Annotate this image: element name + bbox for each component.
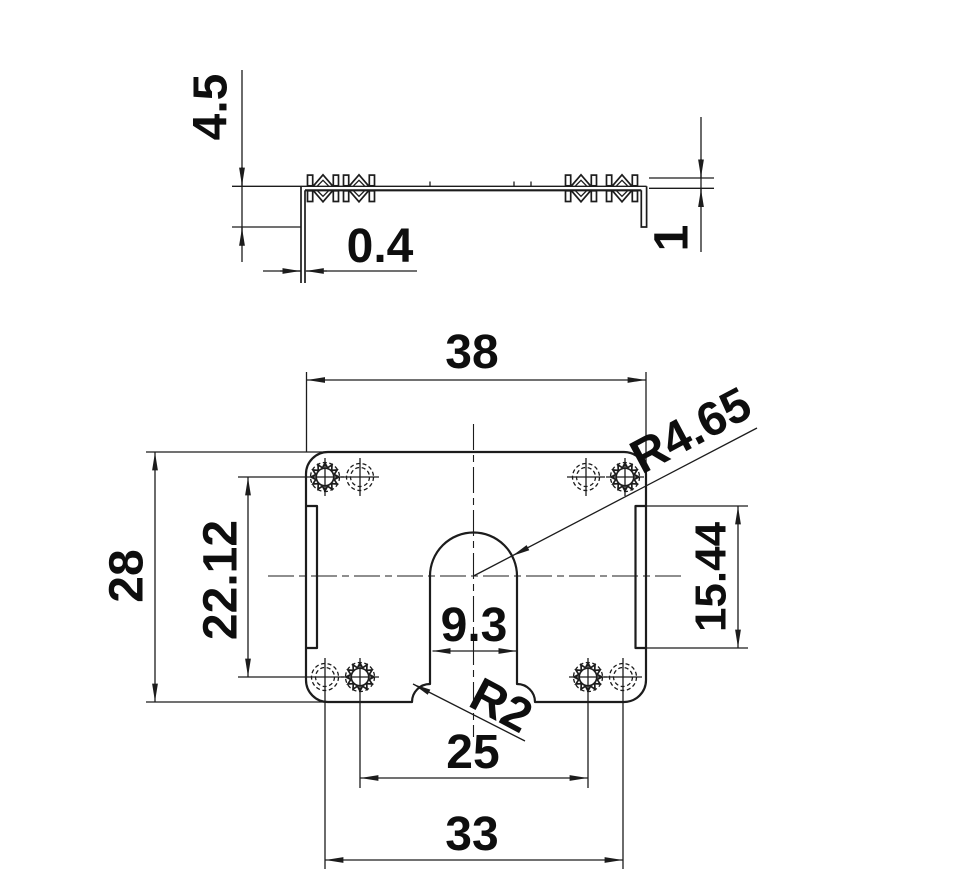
dim-label-4-5: 4.5 bbox=[185, 74, 238, 141]
serration-symbol bbox=[607, 175, 638, 202]
technical-drawing-page: 4.5 0.4 1 bbox=[0, 0, 975, 890]
dim-overall-width: 38 bbox=[307, 326, 647, 485]
plan-view: 38 28 22.12 15.44 9.3 bbox=[101, 326, 760, 869]
dim-label-r4-65: R4.65 bbox=[622, 378, 760, 485]
dim-material-thickness: 0.4 bbox=[263, 220, 417, 273]
serration-symbol bbox=[566, 175, 597, 202]
dim-label-25: 25 bbox=[446, 726, 499, 779]
dim-label-15-44: 15.44 bbox=[687, 521, 736, 632]
dim-label-22-12: 22.12 bbox=[195, 520, 248, 640]
dim-edge-slot-length: 15.44 bbox=[646, 506, 748, 648]
dim-label-0-4: 0.4 bbox=[347, 220, 414, 273]
dim-label-9-3: 9.3 bbox=[441, 599, 508, 652]
dim-flange-length: 4.5 bbox=[185, 70, 302, 262]
technical-drawing: 4.5 0.4 1 bbox=[0, 0, 975, 890]
dim-inner-hole-spacing: 25 bbox=[360, 726, 587, 779]
serration-symbol bbox=[344, 175, 375, 202]
dim-hole-row-spacing: 22.12 bbox=[195, 477, 307, 677]
right-flange bbox=[641, 186, 646, 227]
dim-slot-width: 9.3 bbox=[433, 599, 517, 652]
dim-label-28: 28 bbox=[101, 549, 154, 602]
dim-label-38: 38 bbox=[445, 326, 498, 379]
left-edge-slot bbox=[306, 506, 317, 648]
serration-symbol bbox=[308, 175, 339, 202]
side-view: 4.5 0.4 1 bbox=[185, 70, 715, 283]
right-edge-slot bbox=[636, 506, 647, 648]
dim-tab-height: 1 bbox=[646, 117, 715, 252]
dim-label-33: 33 bbox=[445, 808, 498, 861]
dim-outer-hole-spacing: 33 bbox=[325, 808, 622, 861]
dim-label-1: 1 bbox=[646, 225, 699, 252]
